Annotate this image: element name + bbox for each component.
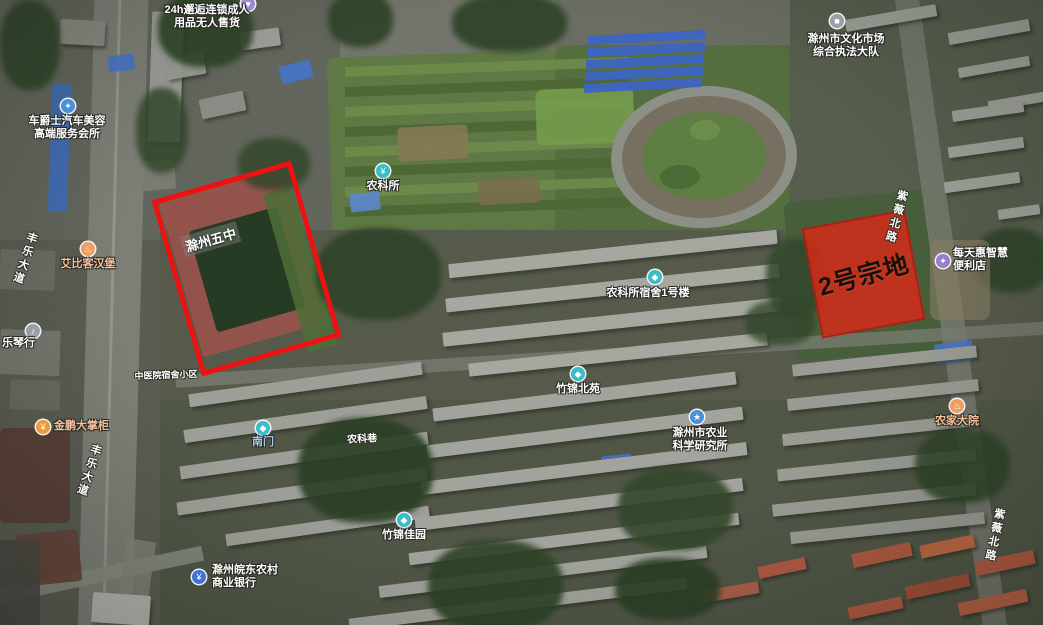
agri-science-station-icon[interactable]: ¥ <box>376 164 390 178</box>
agri-research-institute-label: 滁州市农业科学研究所 <box>673 427 728 453</box>
jinpeng-store-label: 金鹏大掌柜 <box>54 420 109 433</box>
satellite-map-canvas[interactable]: 滁州五中 2号宗地 丰乐大道丰乐大道紫薇北路紫薇北路农科巷中医院宿舍小区 ♥24… <box>0 0 1043 625</box>
adult-goods-store-label: 24h邂逅连锁成人用品无人售货 <box>165 4 250 30</box>
school-parcel-label: 滁州五中 <box>180 221 242 257</box>
aibike-burger-label: 艾比客汉堡 <box>61 258 116 271</box>
music-instrument-store-icon[interactable]: ♪ <box>26 324 40 338</box>
zhujin-jiayuan-icon[interactable]: ◆ <box>397 513 411 527</box>
farmhouse-restaurant-label: 农家大院 <box>935 415 979 428</box>
culture-market-enforcement-icon[interactable]: ■ <box>830 14 844 28</box>
culture-market-enforcement-label: 滁州市文化市场综合执法大队 <box>808 33 885 59</box>
road-label-nongke-lane: 农科巷 <box>347 429 378 446</box>
nongkesuo-dorm-building-1-icon[interactable]: ◆ <box>648 270 662 284</box>
car-beauty-club-label: 车爵士汽车美容高端服务会所 <box>29 115 106 141</box>
agri-science-station-label: 农科所 <box>367 180 400 193</box>
zhujin-north-court-icon[interactable]: ◆ <box>571 367 585 381</box>
wandong-rural-bank-label: 滁州皖东农村商业银行 <box>212 564 278 590</box>
south-gate-icon[interactable]: ◆ <box>256 421 270 435</box>
farmhouse-restaurant-icon[interactable]: ♨ <box>950 399 964 413</box>
smart-convenience-store-label: 每天惠智慧便利店 <box>953 247 1008 273</box>
car-beauty-club-icon[interactable]: ✦ <box>61 99 75 113</box>
parcel-2-label: 2号宗地 <box>814 244 913 304</box>
jinpeng-store-icon[interactable]: ¥ <box>36 420 50 434</box>
agri-research-institute-icon[interactable]: ★ <box>690 410 704 424</box>
wandong-rural-bank-icon[interactable]: ¥ <box>192 570 206 584</box>
nongkesuo-dorm-building-1-label: 农科所宿舍1号楼 <box>606 287 689 300</box>
aibike-burger-icon[interactable]: ♨ <box>81 242 95 256</box>
parcel-2-overlay[interactable]: 2号宗地 <box>802 209 926 338</box>
smart-convenience-store-icon[interactable]: ✦ <box>936 254 950 268</box>
road-label-hospital-dorm-area: 中医院宿舍小区 <box>134 367 197 382</box>
zhujin-north-court-label: 竹锦北苑 <box>556 383 600 396</box>
south-gate-label: 南门 <box>252 436 274 449</box>
music-instrument-store-label: 乐琴行 <box>2 337 35 350</box>
zhujin-jiayuan-label: 竹锦佳园 <box>382 529 426 542</box>
